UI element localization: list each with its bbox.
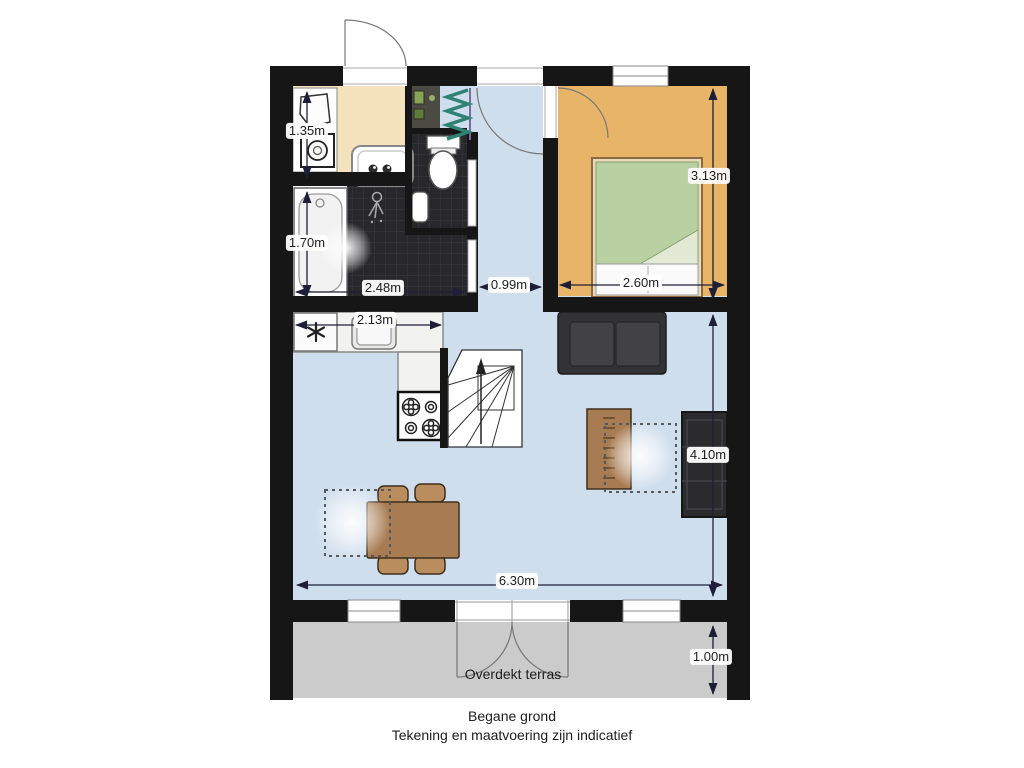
front-door-opening (477, 66, 543, 86)
living-window-right (623, 600, 680, 622)
washing-machine-icon (301, 134, 334, 167)
sofa (558, 312, 666, 374)
terrace-floor (293, 622, 727, 698)
floor-title: Begane grond (468, 708, 556, 724)
dimension-label-kitchen-width: 2.13m (354, 312, 396, 328)
disclaimer-text: Tekening en maatvoering zijn indicatief (392, 727, 632, 743)
kitchen-counter-return (398, 352, 443, 392)
toilet-icon (427, 136, 460, 189)
dimension-label-hallway-width: 0.99m (488, 277, 530, 293)
living-window-left (348, 600, 400, 622)
dimension-label-living-depth: 4.10m (687, 447, 729, 463)
floorplan-drawing (0, 0, 1024, 768)
dimension-label-bathroom-width: 2.48m (362, 280, 404, 296)
dimension-label-bedroom-depth: 3.13m (688, 168, 730, 184)
terrace-label: Overdekt terras (465, 666, 561, 682)
dimension-label-storage-width: 1.35m (286, 123, 328, 139)
tv-cabinet (682, 412, 727, 517)
fridge-icon (294, 313, 337, 351)
storage-door-swing (345, 20, 406, 66)
bedroom-door-opening (543, 86, 558, 138)
stove-icon (398, 392, 443, 440)
dimension-label-bathroom-depth: 1.70m (286, 235, 328, 251)
toilet-door (468, 160, 476, 226)
dimension-label-bedroom-width: 2.60m (620, 275, 662, 291)
bedroom-window (613, 66, 668, 86)
dimension-label-living-width: 6.30m (496, 573, 538, 589)
dimension-label-terrace-depth: 1.00m (690, 649, 732, 665)
dining-chair (415, 484, 445, 502)
storage-door-opening (343, 66, 407, 86)
toilet-sink-icon (412, 192, 428, 222)
bathroom-door (468, 240, 476, 292)
light-glow (606, 422, 674, 490)
floorplan-canvas: 1.35m 1.70m 2.48m 2.13m 0.99m 2.60m 3.13… (0, 0, 1024, 768)
terrace-door-opening (455, 600, 570, 622)
